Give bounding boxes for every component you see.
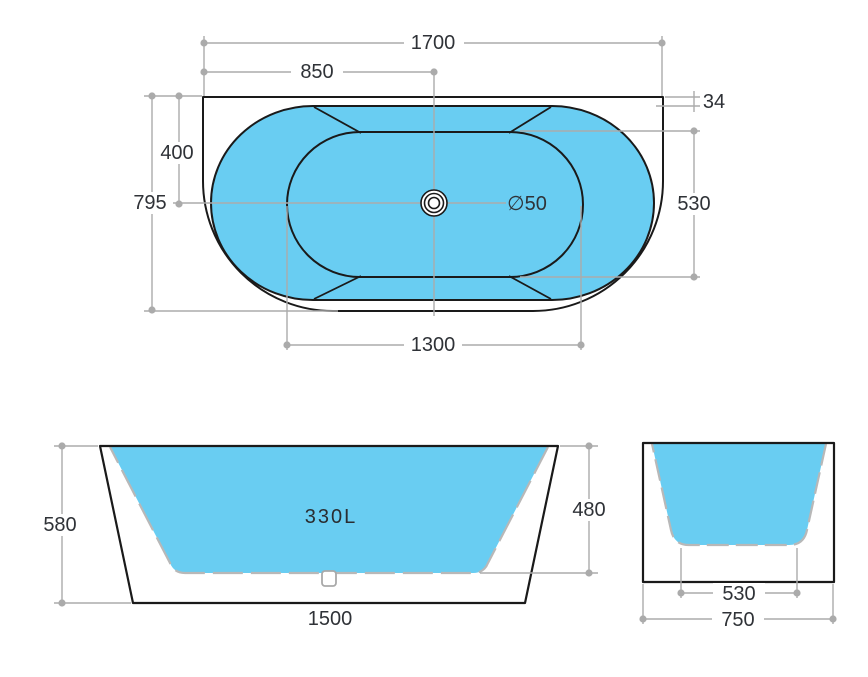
side-view: 530 750	[639, 443, 836, 631]
dimension-dot	[585, 442, 592, 449]
dimension-dot	[430, 68, 437, 75]
dimension-dot	[585, 569, 592, 576]
dimension-label: 750	[721, 609, 754, 631]
dimension-dot	[58, 442, 65, 449]
dimension-dot	[690, 127, 697, 134]
front-view: 330L 580 480 1500	[38, 442, 612, 630]
dimension-dot	[200, 39, 207, 46]
dimension-label: 34	[703, 91, 725, 113]
dimension-label: 400	[160, 142, 193, 164]
dimension-dot	[175, 200, 182, 207]
dimension-bottom-width: 530	[677, 548, 800, 605]
dimension-dot	[639, 615, 646, 622]
dimension-label: 850	[300, 61, 333, 83]
drain-top-view	[421, 190, 447, 216]
dimension-dot	[58, 599, 65, 606]
dimension-dot	[148, 92, 155, 99]
dimension-dot	[829, 615, 836, 622]
dimension-label: 530	[677, 193, 710, 215]
dimension-center-from-left: 850	[200, 61, 437, 83]
top-view: ∅50 1700 850 400	[129, 32, 725, 356]
waste-outlet	[322, 571, 336, 586]
dimension-overall-length: 1700	[200, 32, 665, 96]
dimension-label: 1300	[411, 334, 456, 356]
bathtub-technical-drawing: ∅50 1700 850 400	[0, 0, 868, 677]
water-fill-side	[652, 444, 826, 545]
dimension-dot	[690, 273, 697, 280]
dimension-dot	[677, 589, 684, 596]
dimension-dot	[148, 306, 155, 313]
bottom-length-label: 1500	[308, 608, 353, 630]
dimension-label: 1700	[411, 32, 456, 54]
dimension-dot	[658, 39, 665, 46]
dimension-dot	[577, 341, 584, 348]
dimension-dot	[793, 589, 800, 596]
dimension-label: 580	[43, 514, 76, 536]
dimension-label: 480	[572, 499, 605, 521]
dimension-rim-thickness: 34	[656, 91, 725, 113]
dimension-dot	[200, 68, 207, 75]
dimension-label: 795	[133, 192, 166, 214]
drain-diameter-label: ∅50	[507, 193, 547, 215]
dimension-label: 530	[722, 583, 755, 605]
dimension-dot	[283, 341, 290, 348]
capacity-label: 330L	[305, 506, 358, 528]
dimension-drain-from-back: 400	[156, 92, 200, 207]
